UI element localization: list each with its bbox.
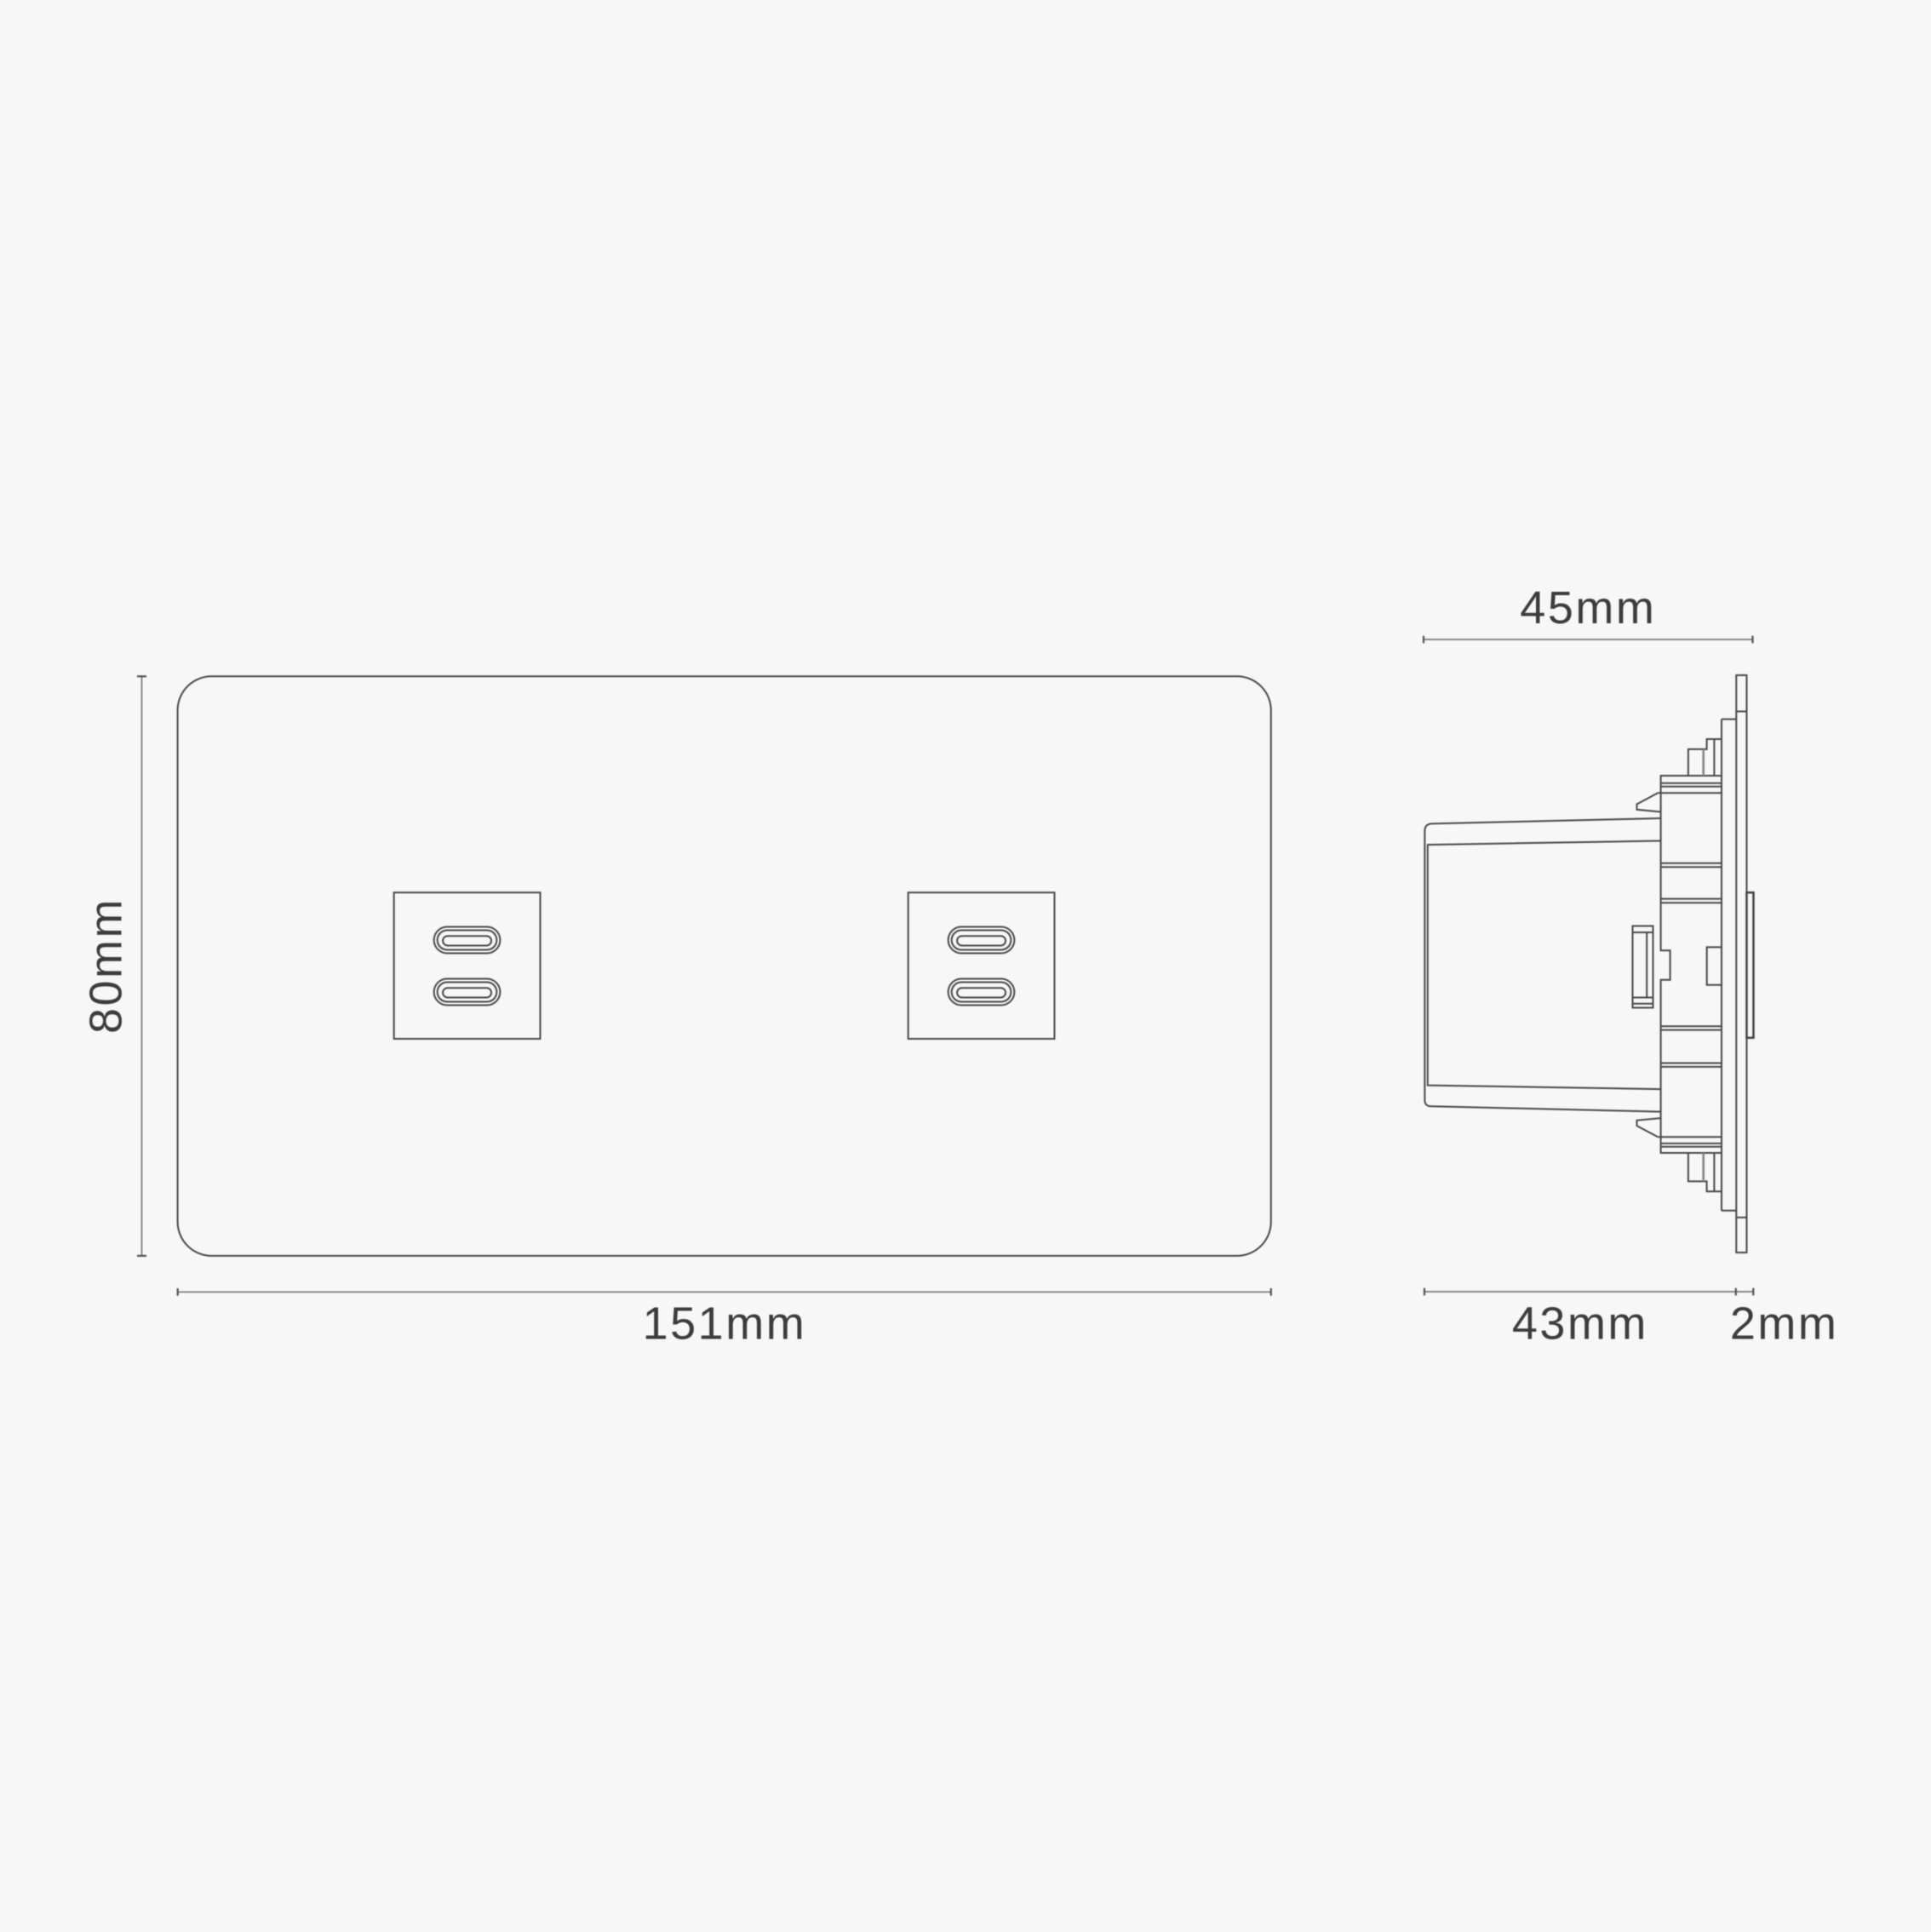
svg-text:45mm: 45mm <box>1520 582 1656 633</box>
svg-text:151mm: 151mm <box>643 1298 807 1349</box>
svg-text:2mm: 2mm <box>1730 1298 1839 1349</box>
svg-text:43mm: 43mm <box>1512 1298 1648 1349</box>
svg-text:80mm: 80mm <box>81 897 132 1034</box>
